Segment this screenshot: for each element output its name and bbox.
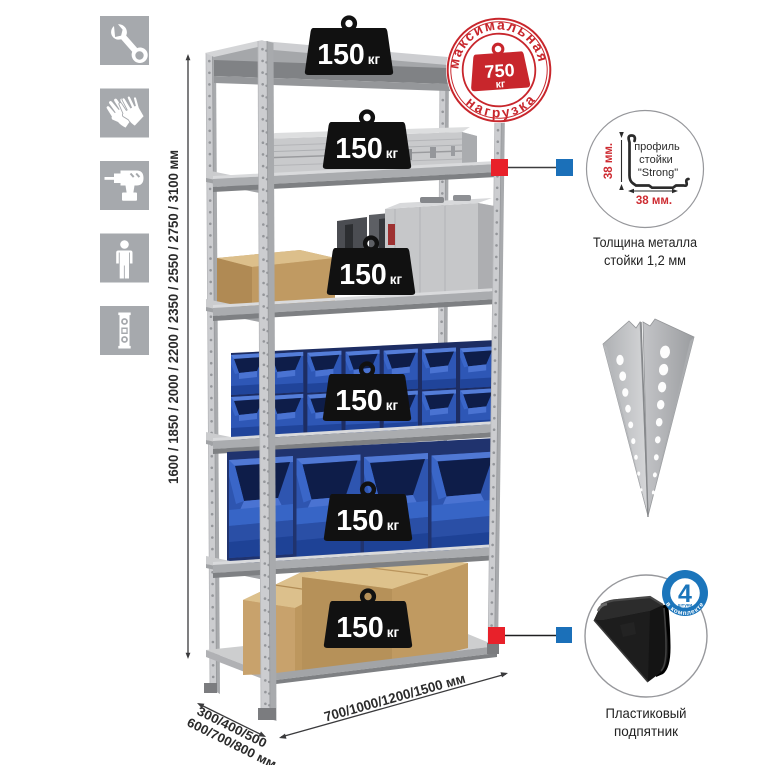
svg-text:кг: кг — [368, 52, 381, 67]
svg-text:1600 / 1850 / 2000 / 2200 / 23: 1600 / 1850 / 2000 / 2200 / 2350 / 2550 … — [166, 150, 182, 484]
svg-text:профиль: профиль — [634, 141, 680, 153]
svg-text:150: 150 — [336, 612, 384, 644]
svg-text:стойки: стойки — [639, 154, 673, 166]
svg-text:кг: кг — [495, 78, 506, 91]
svg-text:38 мм.: 38 мм. — [636, 195, 672, 207]
svg-text:Пластиковый: Пластиковый — [606, 706, 687, 721]
svg-text:700/1000/1200/1500 мм: 700/1000/1200/1500 мм — [322, 671, 467, 725]
svg-text:штуки: штуки — [678, 604, 693, 609]
svg-text:стойки 1,2 мм: стойки 1,2 мм — [604, 253, 686, 268]
svg-text:кг: кг — [390, 272, 403, 287]
svg-text:38 мм.: 38 мм. — [603, 143, 615, 179]
svg-text:150: 150 — [335, 385, 383, 417]
svg-text:подпятник: подпятник — [614, 724, 679, 739]
svg-text:150: 150 — [335, 133, 383, 165]
svg-text:150: 150 — [317, 39, 365, 71]
svg-text:150: 150 — [339, 259, 387, 291]
svg-text:150: 150 — [336, 505, 384, 537]
svg-text:кг: кг — [386, 398, 399, 413]
svg-text:Толщина металла: Толщина металла — [593, 235, 697, 250]
svg-text:кг: кг — [387, 625, 400, 640]
svg-text:кг: кг — [386, 146, 399, 161]
svg-text:кг: кг — [387, 518, 400, 533]
svg-text:"Strong": "Strong" — [638, 167, 678, 179]
